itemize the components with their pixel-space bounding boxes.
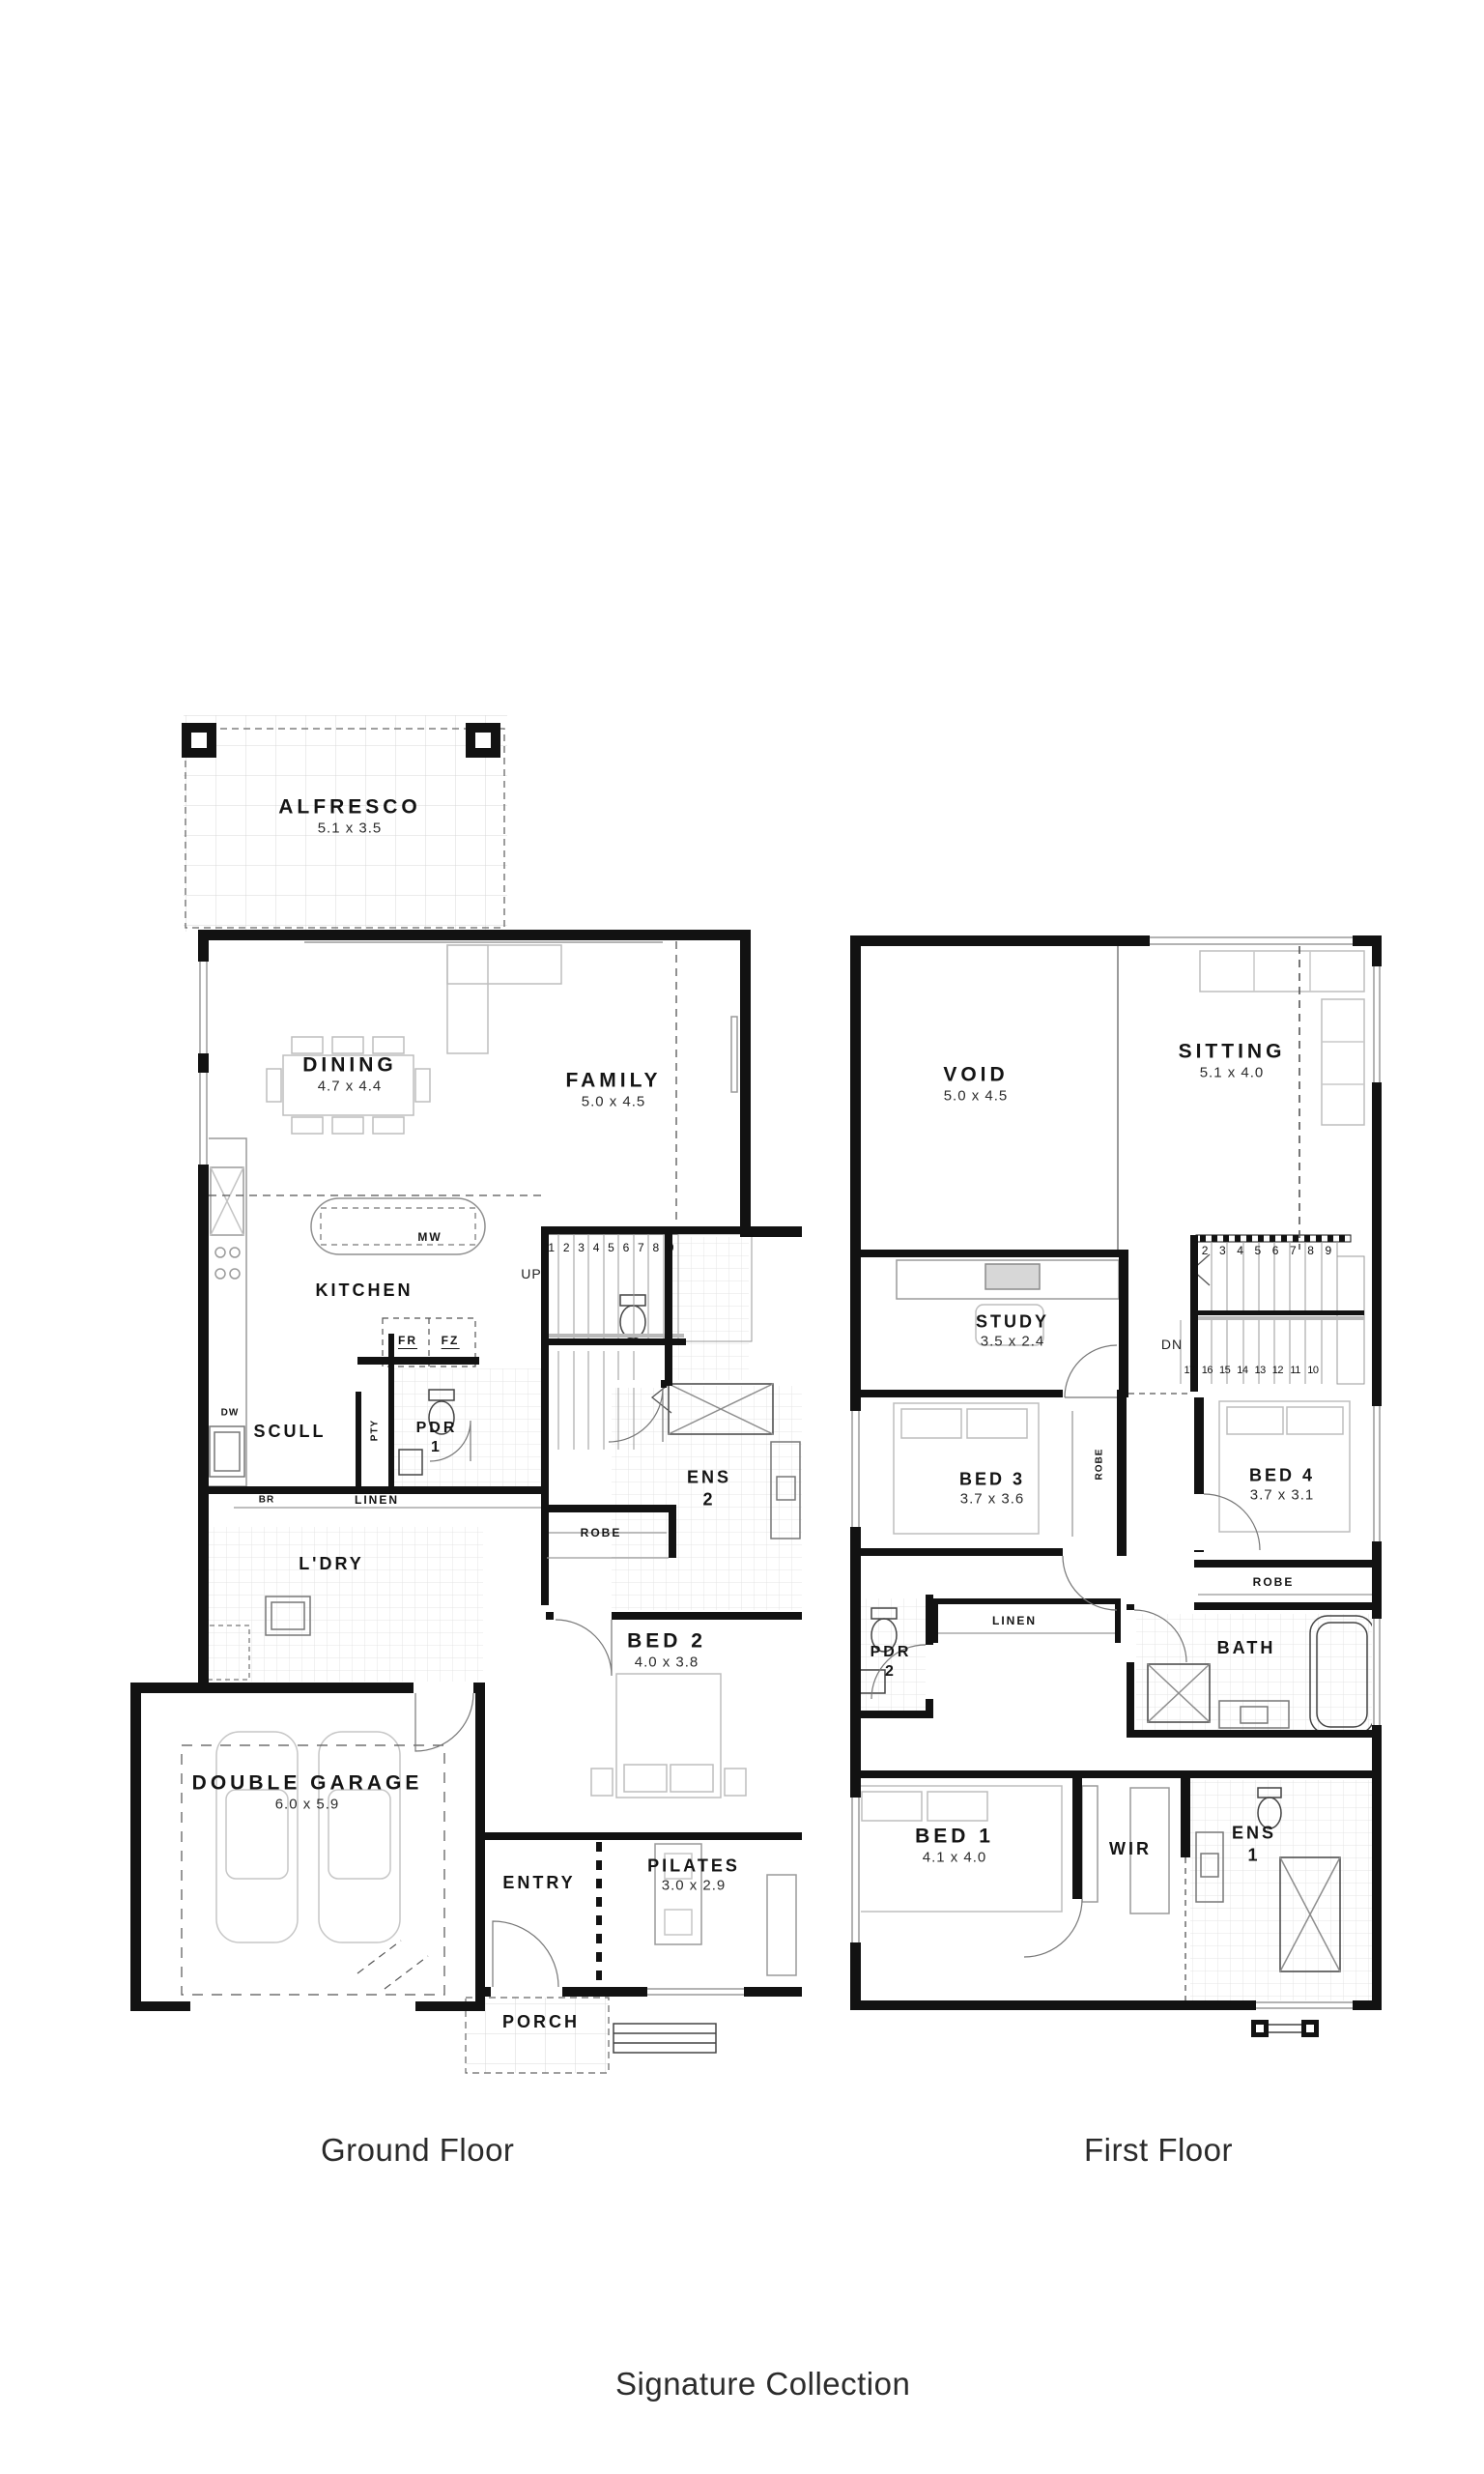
stair-number: 17 <box>1181 1365 1198 1376</box>
room-kitchen: KITCHEN <box>316 1280 414 1302</box>
room-void-dims: 5.0 x 4.5 <box>943 1088 1008 1107</box>
room-dining: DINING 4.7 x 4.4 <box>302 1053 397 1097</box>
stair-number: 4 <box>588 1241 603 1254</box>
room-entry: ENTRY <box>502 1872 575 1894</box>
caption-collection: Signature Collection <box>615 2366 910 2402</box>
stair-number: 10 <box>1304 1365 1322 1376</box>
room-sitting-name: SITTING <box>1179 1041 1286 1063</box>
room-family: FAMILY 5.0 x 4.5 <box>565 1069 661 1112</box>
stair-number: 8 <box>648 1241 663 1254</box>
ff-stair-numbers-upper: 2 3 4 5 6 7 8 9 <box>1196 1244 1337 1257</box>
room-study-name: STUDY <box>976 1311 1049 1331</box>
room-sitting-dims: 5.1 x 4.0 <box>1179 1065 1286 1083</box>
room-bed4-dims: 3.7 x 3.1 <box>1249 1486 1315 1505</box>
label-dishwasher: DW <box>221 1408 240 1419</box>
stair-number: 2 <box>1196 1244 1213 1257</box>
stair-number: 8 <box>1302 1244 1320 1257</box>
room-alfresco-dims: 5.1 x 3.5 <box>278 820 421 839</box>
room-bed1: BED 1 4.1 x 4.0 <box>915 1825 994 1868</box>
room-bed4-name: BED 4 <box>1249 1465 1315 1484</box>
stair-number: 13 <box>1251 1365 1269 1376</box>
stair-number: 2 <box>558 1241 573 1254</box>
stair-number: 16 <box>1198 1365 1215 1376</box>
room-bath: BATH <box>1217 1637 1276 1659</box>
room-pdr2-number: 2 <box>870 1662 912 1682</box>
stair-number: 12 <box>1269 1365 1286 1376</box>
label-robe-bed3: ROBE <box>1095 1449 1105 1481</box>
room-alfresco: ALFRESCO 5.1 x 3.5 <box>278 795 421 839</box>
room-dining-dims: 4.7 x 4.4 <box>302 1079 397 1097</box>
stair-number: 6 <box>618 1241 633 1254</box>
room-bed2-dims: 4.0 x 3.8 <box>627 1654 706 1673</box>
room-pilates: PILATES 3.0 x 2.9 <box>647 1855 740 1894</box>
stair-number: 6 <box>1267 1244 1284 1257</box>
ff-stair-numbers-lower: 17 16 15 14 13 12 11 10 <box>1181 1365 1322 1376</box>
label-fridge: FR <box>398 1334 417 1349</box>
room-entry-name: ENTRY <box>502 1873 575 1892</box>
caption-ground-floor: Ground Floor <box>321 2132 514 2169</box>
stair-number: 9 <box>664 1241 678 1254</box>
room-pilates-name: PILATES <box>647 1855 740 1875</box>
label-robe-gf: ROBE <box>581 1526 622 1539</box>
caption-first-floor: First Floor <box>1084 2132 1233 2169</box>
stair-number: 15 <box>1216 1365 1234 1376</box>
room-ldry-name: L'DRY <box>299 1554 364 1573</box>
stair-number: 7 <box>1284 1244 1301 1257</box>
room-bed2-name: BED 2 <box>627 1630 706 1653</box>
stair-number: 9 <box>1320 1244 1337 1257</box>
stair-number: 4 <box>1232 1244 1249 1257</box>
room-pdr2: PDR 2 <box>870 1643 912 1682</box>
label-linen-ff: LINEN <box>992 1614 1037 1627</box>
label-up: UP <box>521 1266 541 1281</box>
room-family-name: FAMILY <box>565 1070 661 1092</box>
room-bed1-name: BED 1 <box>915 1826 994 1848</box>
room-wir-name: WIR <box>1109 1839 1152 1858</box>
room-bath-name: BATH <box>1217 1638 1276 1657</box>
room-ens2: ENS 2 <box>687 1467 731 1510</box>
label-linen-gf: LINEN <box>355 1493 399 1507</box>
room-ldry: L'DRY <box>299 1553 364 1575</box>
label-broom: BR <box>259 1495 274 1506</box>
room-ens1-name: ENS <box>1232 1824 1276 1843</box>
stair-number: 3 <box>1213 1244 1231 1257</box>
room-bed3: BED 3 3.7 x 3.6 <box>959 1468 1025 1508</box>
label-microwave: MW <box>417 1230 442 1244</box>
room-pilates-dims: 3.0 x 2.9 <box>647 1877 740 1895</box>
stair-number: 3 <box>574 1241 588 1254</box>
gf-stair-numbers: 1 2 3 4 5 6 7 8 9 <box>544 1241 678 1254</box>
room-pdr2-name: PDR <box>870 1644 912 1660</box>
label-pantry: PTY <box>370 1420 381 1441</box>
stair-number: 1 <box>544 1241 558 1254</box>
room-garage-dims: 6.0 x 5.9 <box>192 1797 423 1815</box>
room-wir: WIR <box>1109 1838 1152 1860</box>
room-study-dims: 3.5 x 2.4 <box>976 1333 1049 1351</box>
ground-floor-plan: ALFRESCO 5.1 x 3.5 DINING 4.7 x 4.4 FAMI… <box>126 715 802 2087</box>
first-floor-plan: VOID 5.0 x 4.5 SITTING 5.1 x 4.0 STUDY 3… <box>841 928 1391 2063</box>
room-alfresco-name: ALFRESCO <box>278 796 421 819</box>
room-ens1: ENS 1 <box>1232 1823 1276 1866</box>
room-bed4: BED 4 3.7 x 3.1 <box>1249 1464 1315 1504</box>
room-study: STUDY 3.5 x 2.4 <box>976 1310 1049 1350</box>
floorplan-page: ALFRESCO 5.1 x 3.5 DINING 4.7 x 4.4 FAMI… <box>0 0 1484 2474</box>
room-void: VOID 5.0 x 4.5 <box>943 1063 1008 1107</box>
label-robe-bed4: ROBE <box>1253 1575 1295 1589</box>
room-garage: DOUBLE GARAGE 6.0 x 5.9 <box>192 1771 423 1815</box>
ff-stairs <box>1181 1235 1364 1384</box>
room-garage-name: DOUBLE GARAGE <box>192 1772 423 1795</box>
room-pdr1: PDR 1 <box>416 1419 458 1457</box>
stair-number: 7 <box>634 1241 648 1254</box>
room-porch: PORCH <box>502 2011 580 2033</box>
room-ens2-number: 2 <box>687 1488 731 1510</box>
room-scull-name: SCULL <box>254 1422 327 1441</box>
label-freezer: FZ <box>442 1334 460 1349</box>
room-family-dims: 5.0 x 4.5 <box>565 1094 661 1112</box>
room-bed3-dims: 3.7 x 3.6 <box>959 1490 1025 1509</box>
room-bed2: BED 2 4.0 x 3.8 <box>627 1629 706 1673</box>
room-pdr1-number: 1 <box>416 1438 458 1457</box>
room-bed3-name: BED 3 <box>959 1469 1025 1488</box>
label-dn: DN <box>1161 1337 1183 1352</box>
room-ens1-number: 1 <box>1232 1844 1276 1866</box>
room-kitchen-name: KITCHEN <box>316 1280 414 1300</box>
room-dining-name: DINING <box>302 1054 397 1077</box>
room-porch-name: PORCH <box>502 2012 580 2031</box>
room-bed1-dims: 4.1 x 4.0 <box>915 1850 994 1868</box>
stair-number: 5 <box>1249 1244 1267 1257</box>
ff-exterior-landing <box>1251 2020 1319 2037</box>
room-scull: SCULL <box>254 1421 327 1443</box>
stair-number: 5 <box>604 1241 618 1254</box>
stair-number: 14 <box>1234 1365 1251 1376</box>
room-ens2-name: ENS <box>687 1468 731 1487</box>
room-pdr1-name: PDR <box>416 1420 458 1436</box>
room-void-name: VOID <box>943 1064 1008 1086</box>
stair-number: 11 <box>1287 1365 1304 1376</box>
room-sitting: SITTING 5.1 x 4.0 <box>1179 1040 1286 1083</box>
